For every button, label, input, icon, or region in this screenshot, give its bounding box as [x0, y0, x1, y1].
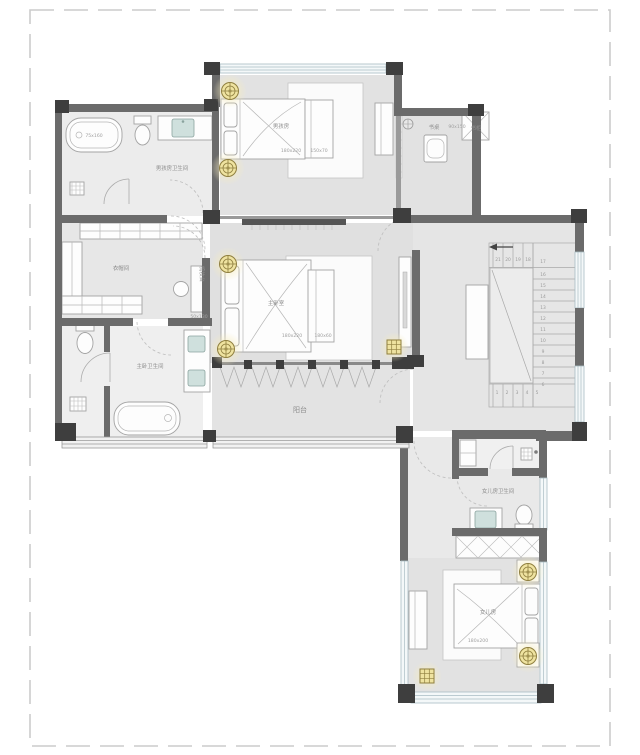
stair-step-number: 3: [516, 390, 519, 396]
room-label-girl-bathroom: 女儿房卫生间: [482, 487, 514, 495]
room-label-closet: 衣帽间: [113, 264, 129, 272]
ceiling-light-icon: [220, 160, 237, 177]
dim-label: 50x130: [190, 314, 207, 320]
stair-step-number: 11: [540, 327, 546, 333]
stair-step-number: 9: [542, 349, 545, 355]
bed-bench: [308, 270, 334, 342]
room-label-master-bathroom: 主卧卫生间: [137, 362, 164, 370]
room-label-master-bedroom: 主卧室: [268, 299, 285, 307]
stair-step-number: 21: [495, 257, 501, 263]
stair-step-number: 12: [540, 316, 546, 322]
dim-label: 75x160: [85, 133, 102, 139]
hall-cabinet: [466, 285, 488, 359]
desk-label: 书桌: [429, 123, 440, 131]
floor-plan-page: 男孩房卫生间 75x160 男孩房 180x220 150x70 书桌 90x1…: [0, 0, 640, 755]
floor-plan-svg: 男孩房卫生间 75x160 男孩房 180x220 150x70 书桌 90x1…: [0, 0, 640, 755]
stool: [174, 282, 189, 297]
double-vanity: [184, 330, 210, 392]
ceiling-light-icon: [220, 256, 237, 273]
room-label-boy-bathroom: 男孩房卫生间: [156, 164, 188, 172]
room-label-balcony: 阳台: [293, 405, 307, 414]
stair-step-number: 7: [542, 371, 545, 377]
room-label-boy-bedroom: 男孩房: [273, 122, 289, 130]
stair-step-number: 5: [536, 390, 539, 396]
stair-step-number: 6: [542, 382, 545, 388]
pillow: [525, 588, 538, 615]
vanity-sink: [470, 508, 502, 531]
vanity-sink: [158, 116, 212, 140]
dim-label: 180x220: [282, 333, 302, 339]
stair-step-number: 15: [540, 283, 546, 289]
ceiling-light-icon: [520, 648, 537, 665]
ceiling-light-icon: [520, 564, 537, 581]
wardrobe: [456, 536, 540, 558]
toilet: [134, 116, 151, 145]
toilet: [76, 323, 94, 354]
side-cabinet: [409, 591, 427, 649]
bathtub: [114, 402, 180, 435]
dim-label: 180x60: [314, 333, 331, 339]
vent-icon: [403, 119, 413, 129]
ceiling-light-icon: [222, 83, 239, 100]
grid-light-icon: [387, 340, 401, 354]
room-label-girl-bedroom: 女儿房: [480, 608, 496, 616]
tv-cabinet: [399, 257, 411, 347]
toilet: [515, 505, 533, 532]
stair-step-number: 17: [540, 259, 546, 265]
dim-label: 90x150: [448, 124, 465, 130]
dim-label: 180x220: [281, 148, 301, 154]
dim-label: 180x200: [468, 638, 488, 644]
stair-step-number: 13: [540, 305, 546, 311]
grid-light-icon: [420, 669, 434, 683]
stair-step-number: 1: [496, 390, 499, 396]
desk: [424, 135, 447, 162]
stair-step-number: 20: [505, 257, 511, 263]
stair-step-number: 8: [542, 360, 545, 366]
ceiling-light-icon: [218, 341, 235, 358]
stair-step-number: 4: [526, 390, 529, 396]
stair-step-number: 18: [525, 257, 531, 263]
bookcase-label: 书柜: [471, 124, 482, 132]
dresser-label: 梳妆台: [198, 266, 206, 282]
stair-step-number: 19: [515, 257, 521, 263]
stair-step-number: 2: [506, 390, 509, 396]
stair-step-number: 16: [540, 272, 546, 278]
stair-step-number: 10: [540, 338, 546, 344]
dim-label: 150x70: [310, 148, 327, 154]
stair-step-number: 14: [540, 294, 546, 300]
